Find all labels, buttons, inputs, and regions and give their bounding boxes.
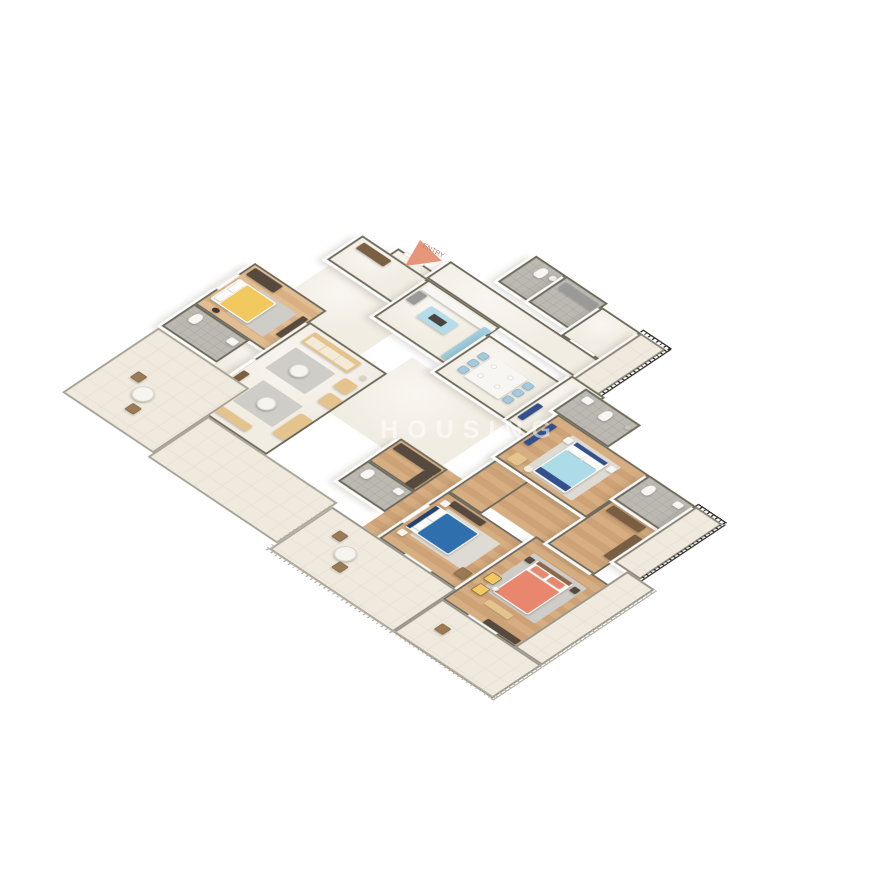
toilet-icon [359,468,377,480]
toilet-icon [187,312,206,325]
floor-lamp-icon [358,374,368,381]
washbasin-icon [225,337,239,347]
terrace-chair [331,530,349,542]
armchair-beige [506,452,528,467]
plate-icon [489,364,498,370]
sideboard-cabinet [355,242,391,266]
plate-icon [493,384,502,390]
armchair-beige [332,377,358,395]
terrace-table-round [329,543,362,565]
toilet-icon [639,484,658,497]
dining-chair [511,388,525,398]
utility-counter [558,282,599,310]
washbasin-icon [580,396,594,406]
bed-coral [492,560,574,615]
entry-arrow-svg: ENTRY [400,234,448,274]
bed-light-blue [532,442,609,494]
stool-icon [210,307,221,314]
terrace-chair [130,371,148,383]
shower-icon [623,425,632,431]
terrace-chair [331,561,349,573]
entry-arrow-icon: ENTRY [400,234,448,274]
dining-chair [521,381,535,391]
cooktop-icon [428,314,448,327]
dining-chair [501,395,515,405]
plate-icon [506,375,515,381]
terrace-chair [124,403,142,415]
nightstand-white [396,528,408,536]
washbasin-icon [671,501,684,510]
bedroom3-chair [453,567,473,580]
washbasin-icon [392,487,405,496]
refrigerator-icon [406,290,428,305]
housing-watermark: HOUSING [340,416,600,445]
floor-plan-scene: ENTRY HOUSING [0,0,870,870]
terrace-table-round [127,383,160,405]
terrace-chair [434,623,452,635]
plate-icon [476,373,485,379]
